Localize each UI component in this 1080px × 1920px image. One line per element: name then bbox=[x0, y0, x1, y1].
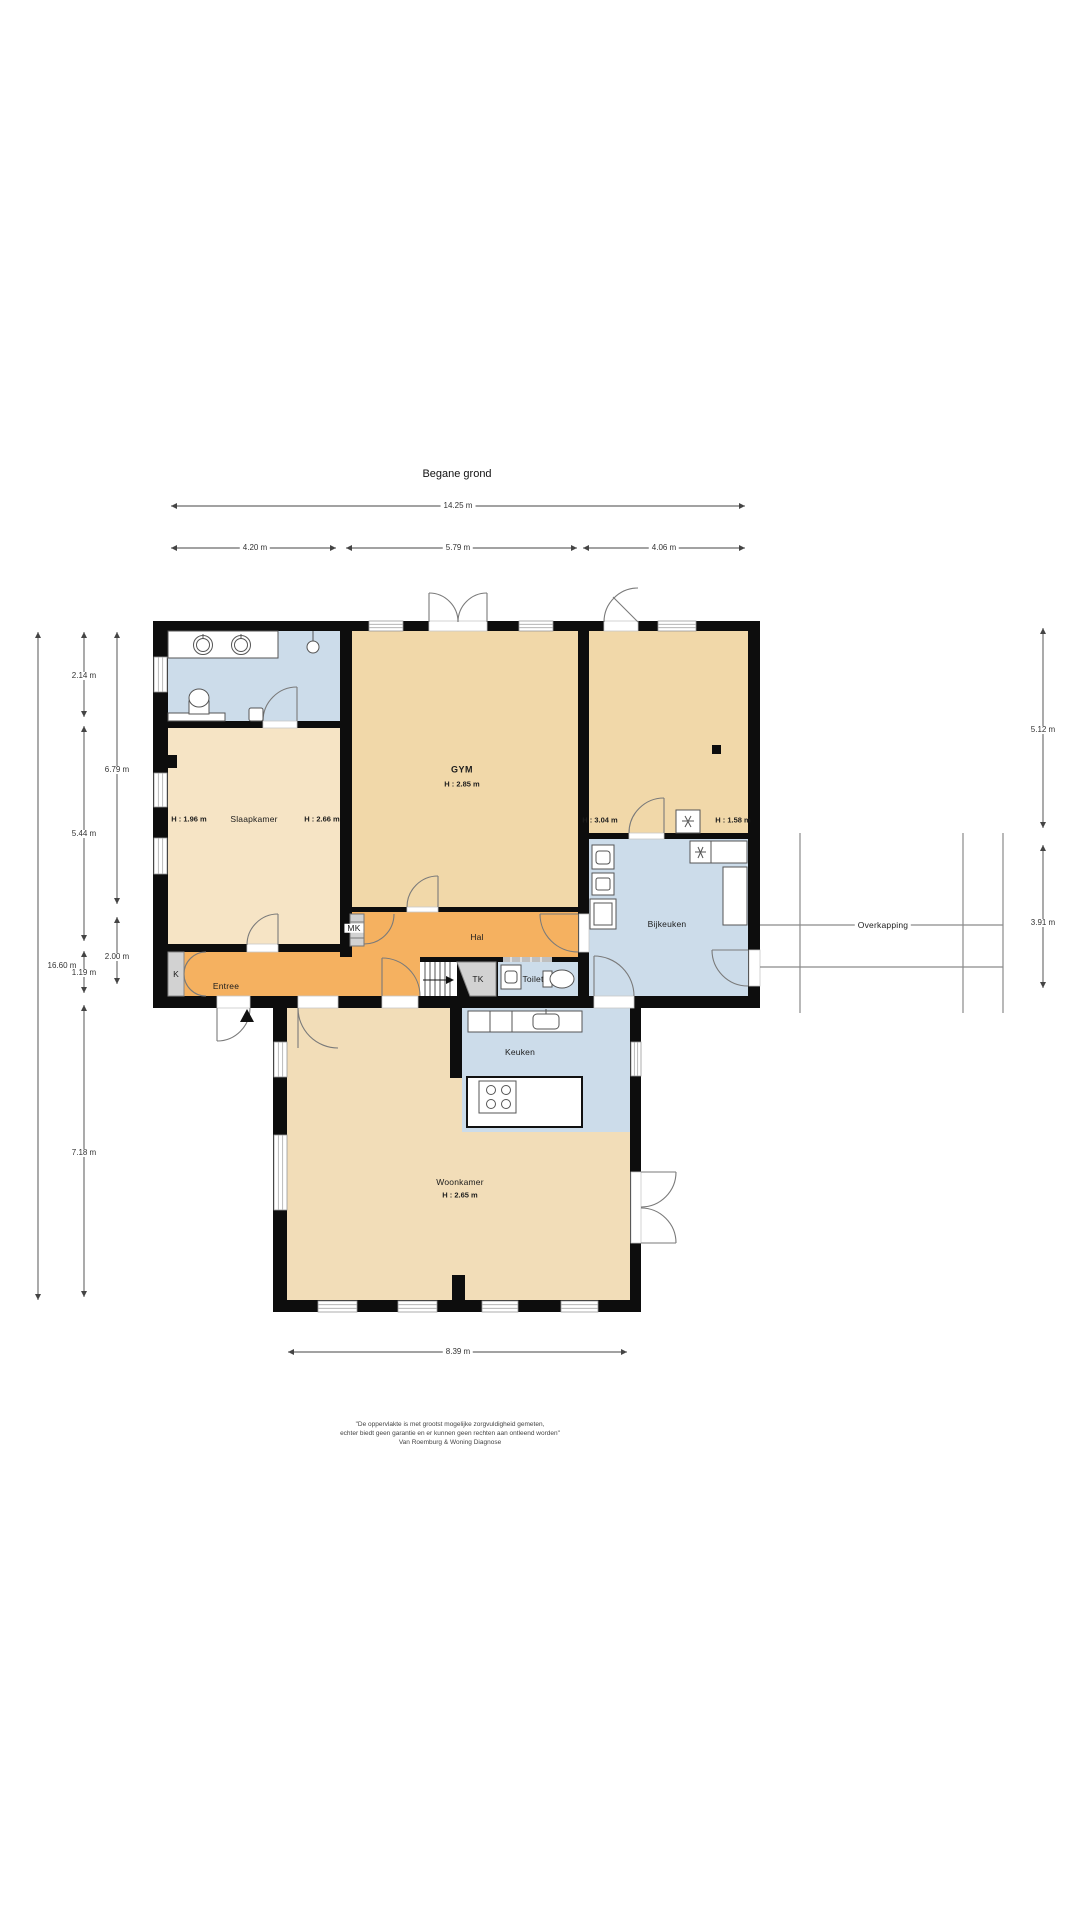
door-opening bbox=[629, 833, 664, 839]
slaapkamer-height-left: H : 1.96 m bbox=[171, 815, 206, 823]
freezer-icon bbox=[676, 810, 700, 833]
keuken-label: Keuken bbox=[505, 1048, 535, 1057]
dim-left-inner-2: 5.44 m bbox=[69, 830, 99, 838]
window-icon bbox=[658, 621, 696, 631]
room-fills bbox=[168, 631, 748, 1300]
window-icon bbox=[154, 773, 167, 807]
gym-height: H : 2.85 m bbox=[444, 780, 479, 788]
slaapkamer-height-right: H : 2.66 m bbox=[304, 815, 339, 823]
room-hal-lower bbox=[340, 957, 420, 996]
window-icon bbox=[482, 1301, 518, 1312]
window-icon bbox=[154, 657, 167, 692]
dim-top-seg-3: 4.06 m bbox=[649, 544, 679, 552]
page-title: Begane grond bbox=[422, 468, 491, 480]
window-icon bbox=[274, 1042, 287, 1077]
toilet-label: Toilet bbox=[522, 975, 543, 984]
dim-right-1: 5.12 m bbox=[1028, 726, 1058, 734]
door-opening bbox=[429, 621, 487, 631]
dim-left-outer-2: 2.00 m bbox=[102, 953, 132, 961]
disclaimer-line-2: echter biedt geen garantie en er kunnen … bbox=[340, 1429, 560, 1438]
door-opening bbox=[407, 907, 438, 912]
disclaimer-line-1: "De oppervlakte is met grootst mogelijke… bbox=[340, 1420, 560, 1429]
room-entree bbox=[184, 952, 340, 996]
entrance-arrow-icon bbox=[240, 1009, 254, 1022]
door-opening bbox=[749, 950, 760, 986]
window-icon bbox=[519, 621, 553, 631]
door-opening bbox=[631, 1172, 641, 1243]
floor-plan-page: Begane grond 14.25 m 4.20 m 5.79 m 4.06 … bbox=[0, 0, 1080, 1920]
window-icon bbox=[318, 1301, 357, 1312]
dim-top-seg-1: 4.20 m bbox=[240, 544, 270, 552]
window-icon bbox=[561, 1301, 598, 1312]
window-icon bbox=[631, 1042, 641, 1076]
room-slaapkamer bbox=[168, 728, 340, 944]
multi-height-right: H : 1.58 m bbox=[715, 816, 750, 824]
counter bbox=[711, 841, 747, 863]
dim-bottom: 8.39 m bbox=[443, 1348, 473, 1356]
door-opening bbox=[579, 914, 589, 952]
door-opening bbox=[594, 996, 634, 1008]
multi-height-left: H : 3.04 m bbox=[582, 816, 617, 824]
woonkamer-label: Woonkamer bbox=[436, 1178, 483, 1187]
entree-label: Entree bbox=[213, 982, 239, 991]
kitchen-counter bbox=[468, 1011, 582, 1032]
kast-label: K bbox=[173, 970, 179, 979]
dim-right-2: 3.91 m bbox=[1028, 919, 1058, 927]
door-opening bbox=[217, 996, 250, 1008]
overkapping-label: Overkapping bbox=[855, 921, 911, 930]
slaapkamer-label: Slaapkamer bbox=[230, 815, 277, 824]
door-opening bbox=[382, 996, 418, 1008]
floor-plan-drawing bbox=[0, 0, 1080, 1920]
gym-label: GYM bbox=[451, 766, 473, 775]
trapkast-label: TK bbox=[472, 975, 483, 984]
dim-left-inner-3: 1.19 m bbox=[69, 969, 99, 977]
woonkamer-height: H : 2.65 m bbox=[442, 1191, 477, 1199]
window-icon bbox=[274, 1135, 287, 1210]
cabinet bbox=[723, 867, 747, 925]
meterkast-label: MK bbox=[344, 924, 363, 933]
dim-left-outer-1: 6.79 m bbox=[102, 766, 132, 774]
bin-icon bbox=[249, 708, 263, 721]
bijkeuken-label: Bijkeuken bbox=[648, 920, 687, 929]
column-dot bbox=[712, 745, 721, 754]
sliding-door-toilet bbox=[503, 957, 552, 962]
door-opening bbox=[298, 996, 338, 1008]
door-opening bbox=[604, 621, 638, 631]
room-multi bbox=[589, 631, 748, 833]
hal-label: Hal bbox=[470, 933, 483, 942]
vanity-counter bbox=[168, 631, 278, 658]
window-icon bbox=[398, 1301, 437, 1312]
window-icon bbox=[369, 621, 403, 631]
dim-top-seg-2: 5.79 m bbox=[443, 544, 473, 552]
kitchen-sink-icon bbox=[533, 1014, 559, 1029]
disclaimer-line-3: Van Roemburg & Woning Diagnose bbox=[340, 1438, 560, 1447]
door-opening bbox=[247, 944, 278, 952]
door-opening bbox=[263, 721, 297, 728]
freezer-icon bbox=[690, 841, 711, 863]
window-icon bbox=[154, 838, 167, 874]
dim-left-inner-4: 7.18 m bbox=[69, 1149, 99, 1157]
disclaimer: "De oppervlakte is met grootst mogelijke… bbox=[340, 1420, 560, 1447]
dim-left-inner-1: 2.14 m bbox=[69, 672, 99, 680]
cooktop-icon bbox=[479, 1081, 516, 1113]
dim-top-total: 14.25 m bbox=[441, 502, 476, 510]
